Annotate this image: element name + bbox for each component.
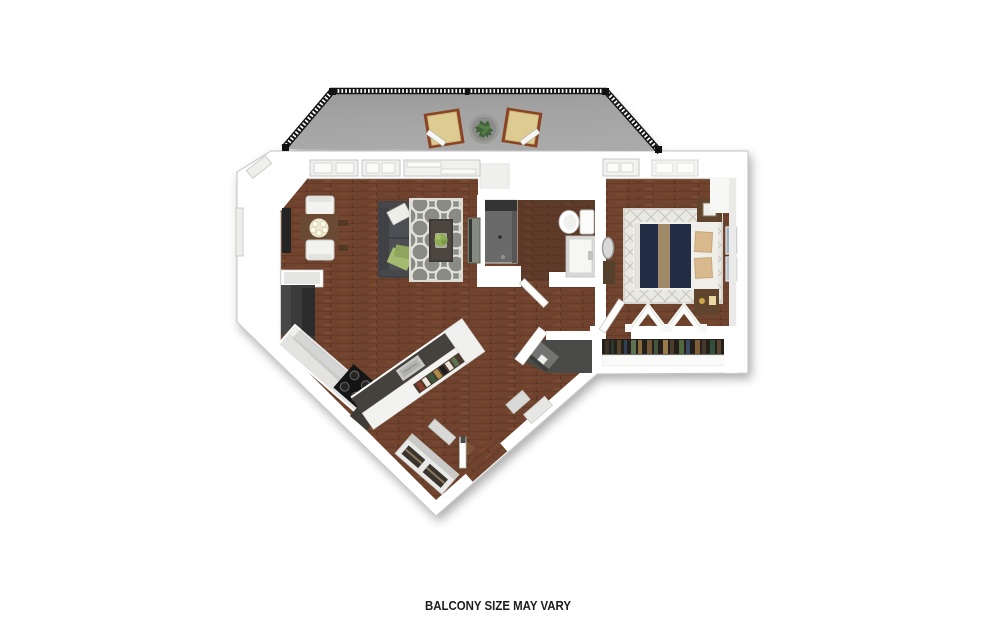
svg-text:BALCONY SIZE MAY VARY: BALCONY SIZE MAY VARY xyxy=(425,598,571,613)
